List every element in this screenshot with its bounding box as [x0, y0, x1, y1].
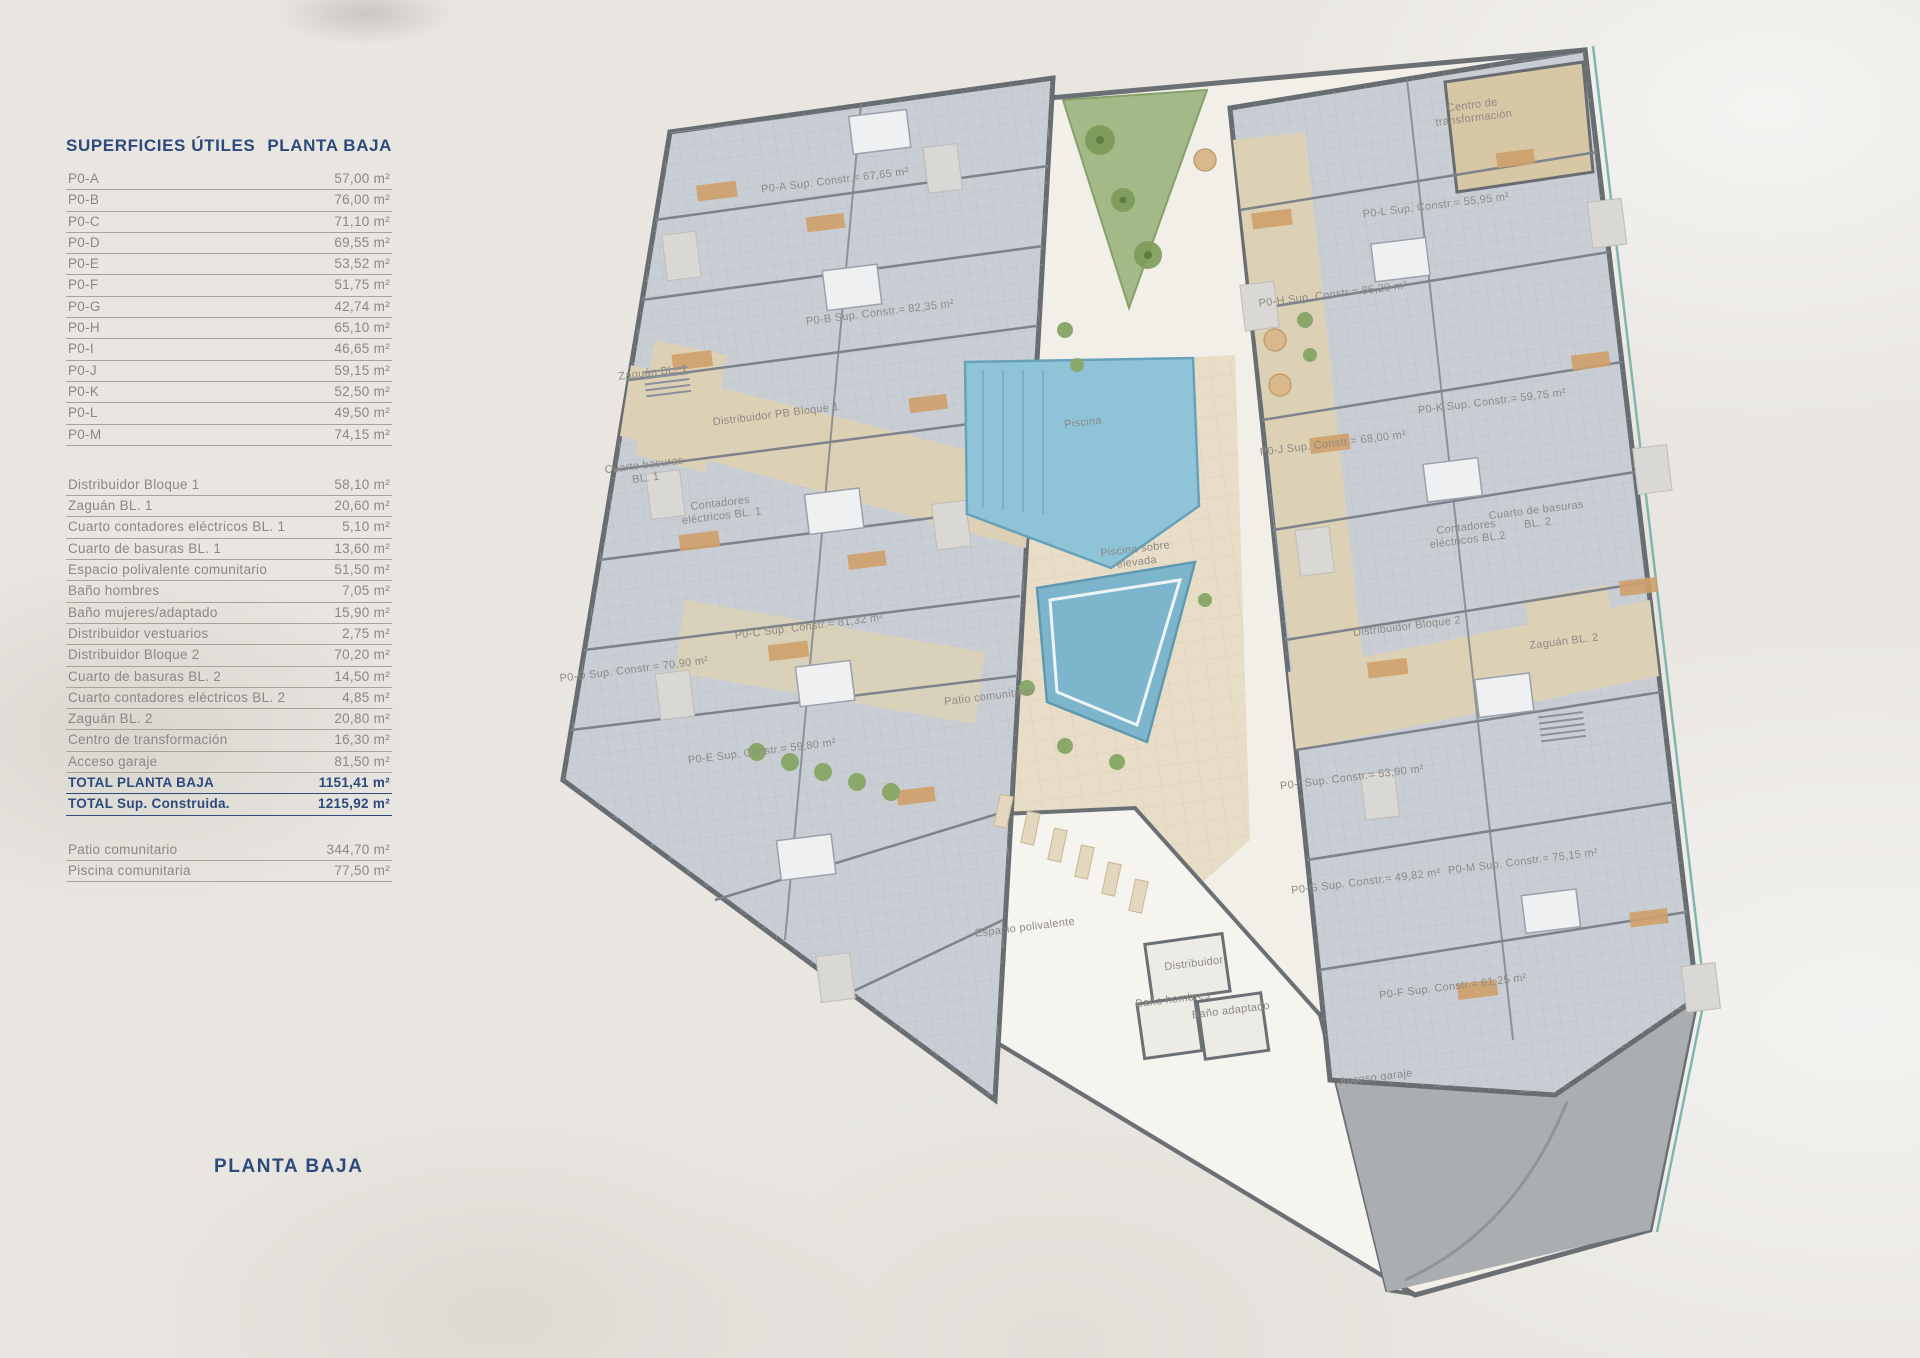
- surface-row-unit: P0-G 42,74 m²: [66, 297, 392, 318]
- surface-row-common: Acceso garaje 81,50 m²: [66, 752, 392, 773]
- surface-name: Cuarto de basuras BL. 1: [68, 541, 221, 556]
- surface-area: 42,74 m²: [334, 299, 390, 314]
- surface-area: 65,10 m²: [334, 320, 390, 335]
- surface-area: 76,00 m²: [334, 192, 390, 207]
- surface-name: Cuarto contadores eléctricos BL. 1: [68, 519, 285, 534]
- total-rows: TOTAL PLANTA BAJA 1151,41 m² TOTAL Sup. …: [66, 773, 392, 816]
- surface-row-unit: P0-J 59,15 m²: [66, 361, 392, 382]
- surface-row-unit: P0-B 76,00 m²: [66, 190, 392, 211]
- table-gap: [66, 816, 392, 840]
- floor-plan: P0-A Sup. Constr.= 67,65 m² P0-B Sup. Co…: [505, 40, 1825, 1330]
- surface-name: Patio comunitario: [68, 842, 177, 857]
- surface-row-common: Baño hombres 7,05 m²: [66, 581, 392, 602]
- surface-name: P0-I: [68, 341, 94, 356]
- table-title-left: SUPERFICIES ÚTILES: [66, 136, 255, 156]
- surface-name: Piscina comunitaria: [68, 863, 191, 878]
- surface-row-total: TOTAL PLANTA BAJA 1151,41 m²: [66, 773, 392, 794]
- surface-name: Cuarto contadores eléctricos BL. 2: [68, 690, 285, 705]
- surface-name: P0-M: [68, 427, 101, 442]
- surface-row-unit: P0-H 65,10 m²: [66, 318, 392, 339]
- surface-name: P0-E: [68, 256, 99, 271]
- surface-area: 57,00 m²: [334, 171, 390, 186]
- surface-row-unit: P0-K 52,50 m²: [66, 382, 392, 403]
- surface-row-total: TOTAL Sup. Construida. 1215,92 m²: [66, 794, 392, 815]
- surface-row-common: Cuarto de basuras BL. 2 14,50 m²: [66, 667, 392, 688]
- surface-name: P0-G: [68, 299, 101, 314]
- surface-row-unit: P0-E 53,52 m²: [66, 254, 392, 275]
- surface-name: Centro de transformación: [68, 732, 228, 747]
- surface-row-common: Baño mujeres/adaptado 15,90 m²: [66, 603, 392, 624]
- surface-row-exterior: Piscina comunitaria 77,50 m²: [66, 861, 392, 882]
- surface-area: 20,60 m²: [334, 498, 390, 513]
- surface-row-common: Centro de transformación 16,30 m²: [66, 730, 392, 751]
- total-name: TOTAL Sup. Construida.: [68, 796, 230, 811]
- surfaces-table-header: SUPERFICIES ÚTILES PLANTA BAJA: [66, 136, 392, 156]
- surface-area: 51,50 m²: [334, 562, 390, 577]
- surface-row-unit: P0-L 49,50 m²: [66, 403, 392, 424]
- surface-row-unit: P0-F 51,75 m²: [66, 275, 392, 296]
- surface-area: 5,10 m²: [342, 519, 390, 534]
- floor-plan-drawing: [505, 40, 1825, 1330]
- page-title: PLANTA BAJA: [214, 1156, 364, 1178]
- total-area: 1215,92 m²: [318, 796, 390, 811]
- surface-area: 7,05 m²: [342, 583, 390, 598]
- surface-row-unit: P0-D 69,55 m²: [66, 233, 392, 254]
- surface-area: 53,52 m²: [334, 256, 390, 271]
- surface-name: Distribuidor vestuarios: [68, 626, 208, 641]
- surface-row-common: Cuarto contadores eléctricos BL. 1 5,10 …: [66, 517, 392, 538]
- surface-row-common: Distribuidor Bloque 1 58,10 m²: [66, 475, 392, 496]
- surface-area: 13,60 m²: [334, 541, 390, 556]
- surface-area: 77,50 m²: [334, 863, 390, 878]
- surface-row-unit: P0-I 46,65 m²: [66, 339, 392, 360]
- surface-area: 69,55 m²: [334, 235, 390, 250]
- unit-rows: P0-A 57,00 m² P0-B 76,00 m² P0-C 71,10 m…: [66, 169, 392, 446]
- surface-name: Cuarto de basuras BL. 2: [68, 669, 221, 684]
- total-name: TOTAL PLANTA BAJA: [68, 775, 214, 790]
- surface-name: Zaguán BL. 1: [68, 498, 153, 513]
- surface-row-common: Zaguán BL. 2 20,80 m²: [66, 709, 392, 730]
- surface-area: 81,50 m²: [334, 754, 390, 769]
- surface-name: P0-J: [68, 363, 97, 378]
- surface-name: P0-B: [68, 192, 99, 207]
- surface-row-common: Zaguán BL. 1 20,60 m²: [66, 496, 392, 517]
- surface-name: P0-K: [68, 384, 99, 399]
- surface-area: 58,10 m²: [334, 477, 390, 492]
- surface-area: 2,75 m²: [342, 626, 390, 641]
- surface-row-unit: P0-M 74,15 m²: [66, 425, 392, 446]
- brochure-sheet: SUPERFICIES ÚTILES PLANTA BAJA P0-A 57,0…: [0, 0, 1920, 1358]
- surface-row-common: Espacio polivalente comunitario 51,50 m²: [66, 560, 392, 581]
- exterior-rows: Patio comunitario 344,70 m² Piscina comu…: [66, 840, 392, 883]
- surface-row-unit: P0-A 57,00 m²: [66, 169, 392, 190]
- surface-row-common: Distribuidor Bloque 2 70,20 m²: [66, 645, 392, 666]
- surface-area: 20,80 m²: [334, 711, 390, 726]
- surface-name: Espacio polivalente comunitario: [68, 562, 267, 577]
- surface-area: 70,20 m²: [334, 647, 390, 662]
- surfaces-table: SUPERFICIES ÚTILES PLANTA BAJA P0-A 57,0…: [66, 136, 392, 882]
- surface-row-unit: P0-C 71,10 m²: [66, 212, 392, 233]
- surface-name: Zaguán BL. 2: [68, 711, 153, 726]
- surface-row-common: Cuarto contadores eléctricos BL. 2 4,85 …: [66, 688, 392, 709]
- surface-name: Baño mujeres/adaptado: [68, 605, 218, 620]
- surface-row-exterior: Patio comunitario 344,70 m²: [66, 840, 392, 861]
- table-gap: [66, 446, 392, 475]
- surface-area: 74,15 m²: [334, 427, 390, 442]
- surface-name: Distribuidor Bloque 2: [68, 647, 200, 662]
- surface-name: P0-H: [68, 320, 100, 335]
- surface-row-common: Cuarto de basuras BL. 1 13,60 m²: [66, 539, 392, 560]
- surface-name: Baño hombres: [68, 583, 159, 598]
- surface-row-common: Distribuidor vestuarios 2,75 m²: [66, 624, 392, 645]
- surface-area: 52,50 m²: [334, 384, 390, 399]
- surface-area: 49,50 m²: [334, 405, 390, 420]
- common-rows: Distribuidor Bloque 1 58,10 m² Zaguán BL…: [66, 475, 392, 773]
- surface-area: 14,50 m²: [334, 669, 390, 684]
- surface-area: 16,30 m²: [334, 732, 390, 747]
- surface-area: 15,90 m²: [334, 605, 390, 620]
- surface-name: Acceso garaje: [68, 754, 157, 769]
- surface-name: Distribuidor Bloque 1: [68, 477, 200, 492]
- surface-name: P0-A: [68, 171, 99, 186]
- table-title-right: PLANTA BAJA: [267, 136, 392, 156]
- surface-area: 51,75 m²: [334, 277, 390, 292]
- surface-name: P0-L: [68, 405, 98, 420]
- surface-area: 46,65 m²: [334, 341, 390, 356]
- surface-area: 71,10 m²: [334, 214, 390, 229]
- surface-area: 4,85 m²: [342, 690, 390, 705]
- surface-area: 59,15 m²: [334, 363, 390, 378]
- surface-name: P0-C: [68, 214, 100, 229]
- surface-area: 344,70 m²: [327, 842, 390, 857]
- total-area: 1151,41 m²: [319, 775, 390, 790]
- surface-name: P0-D: [68, 235, 100, 250]
- surface-name: P0-F: [68, 277, 98, 292]
